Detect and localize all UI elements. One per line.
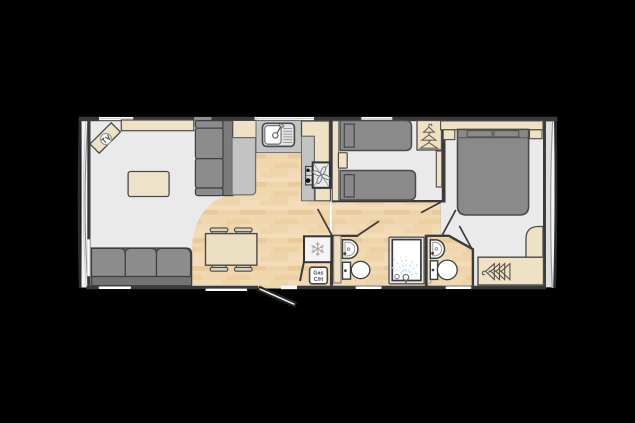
svg-text:Gas: Gas (313, 271, 323, 277)
svg-text:C/H: C/H (314, 277, 323, 283)
